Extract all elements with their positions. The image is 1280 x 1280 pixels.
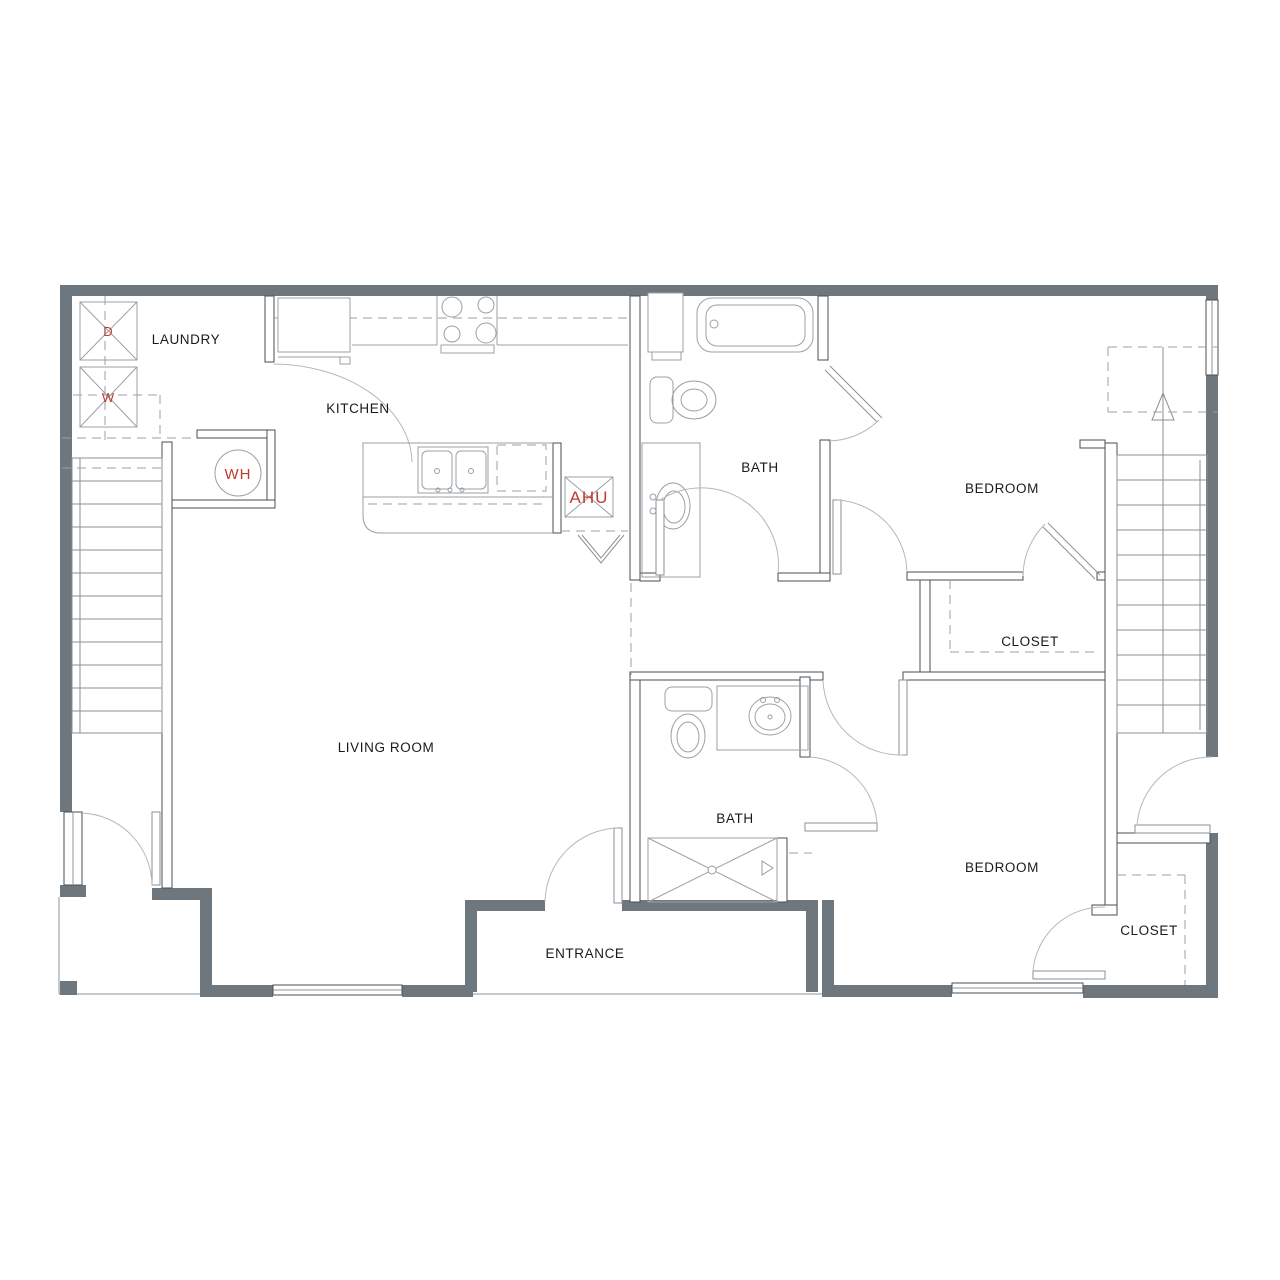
wall-top	[60, 285, 1218, 296]
closet-upper-south-wall	[903, 672, 1110, 680]
bathtub	[697, 298, 813, 352]
laundry-east-wall	[265, 296, 274, 362]
bedroom-upper-window	[1206, 300, 1218, 375]
bath-upper-hall-door	[656, 488, 778, 575]
bedroom-upper-south-wall	[907, 572, 1023, 580]
label-bedroom-upper: BEDROOM	[965, 481, 1039, 496]
wall-bottom-bedroom-right	[1083, 985, 1218, 998]
landing-closet-divider-wall	[1117, 833, 1210, 843]
bedroom-upper-door	[833, 500, 907, 574]
label-water-heater: WH	[225, 466, 252, 483]
stairwell-landing-cap	[1080, 440, 1105, 448]
wall-bottom-livingroom-left	[202, 985, 273, 997]
entrance-alcove-west-wall	[465, 900, 477, 992]
livingroom-bath-lower-wall	[630, 677, 640, 902]
label-kitchen: KITCHEN	[326, 401, 389, 416]
unit-entry-door	[1135, 757, 1212, 833]
bedroom-lower-window	[952, 983, 1083, 993]
bedroom-lower-door	[823, 680, 907, 755]
kitchen-island	[363, 443, 553, 533]
wh-closet-north-wall	[197, 430, 275, 438]
stair-livingroom-wall	[162, 442, 172, 888]
bath-upper-tub-east-wall	[818, 296, 828, 360]
entrance-alcove-north-left	[465, 900, 545, 911]
entrance-alcove-east-wall	[806, 900, 818, 992]
label-dryer: D	[103, 324, 112, 339]
vanity-lower	[717, 686, 808, 750]
bath-upper-bedroom-door	[825, 366, 882, 441]
wall-step-vertical	[200, 888, 212, 997]
label-closet-upper: CLOSET	[1001, 634, 1059, 649]
refrigerator	[278, 298, 350, 364]
linen-cabinet	[648, 293, 683, 352]
stove	[437, 296, 497, 353]
label-entrance: ENTRANCE	[545, 946, 624, 961]
bath-upper-fixtures	[642, 293, 813, 577]
stairwell-west-wall	[1105, 443, 1117, 907]
living-room-window	[273, 985, 402, 995]
ahu-closet-wall	[553, 443, 561, 533]
label-laundry: LAUNDRY	[152, 332, 220, 347]
floor-plan-drawing: LAUNDRY KITCHEN BATH BEDROOM CLOSET LIVI…	[0, 0, 1280, 1280]
wall-right-mid	[1206, 375, 1218, 757]
toilet-upper	[650, 377, 716, 423]
label-living-room: LIVING ROOM	[338, 740, 435, 755]
interior-walls	[162, 296, 1210, 915]
kitchen-sink	[418, 447, 488, 493]
label-bath-lower: BATH	[716, 811, 753, 826]
wall-left-cap	[60, 885, 86, 897]
label-bath-upper: BATH	[741, 460, 778, 475]
laundry-area	[62, 296, 412, 468]
shower-head-icon	[762, 861, 773, 875]
vanity-upper	[642, 443, 700, 577]
right-staircase	[1108, 347, 1218, 733]
bath-lower-door	[805, 757, 877, 831]
label-air-handler: AHU	[570, 488, 609, 507]
bedroom-lower-sw-wall	[822, 900, 834, 997]
closet-upper-door	[1023, 523, 1100, 579]
label-bedroom-lower: BEDROOM	[965, 860, 1039, 875]
patio-sidelite-window	[64, 812, 82, 885]
wall-bottom-livingroom-right	[402, 985, 473, 997]
kitchen-bath-wall	[630, 296, 640, 580]
wall-right-lower	[1206, 833, 1218, 998]
wh-closet-east-wall	[267, 430, 275, 508]
entrance-door	[545, 828, 622, 903]
label-washer: W	[102, 390, 115, 405]
patio-door	[82, 812, 160, 885]
porch-post	[60, 981, 77, 995]
closet-upper-west-wall	[920, 580, 930, 676]
bath-upper-east-wall	[820, 440, 830, 577]
porch-outline	[59, 897, 832, 994]
room-labels: LAUNDRY KITCHEN BATH BEDROOM CLOSET LIVI…	[152, 332, 1178, 961]
kitchen-fixtures	[273, 296, 628, 563]
wall-right-upper	[1206, 285, 1218, 300]
hall-south-wall	[630, 672, 823, 680]
wall-bottom-bedroom-left	[834, 985, 952, 997]
toilet-lower	[665, 687, 712, 758]
left-staircase	[72, 458, 162, 733]
dishwasher	[497, 445, 546, 491]
wh-closet-south-wall	[167, 500, 275, 508]
bath-upper-south-wall-right	[778, 573, 830, 581]
shower-east-wall	[777, 838, 787, 902]
label-closet-lower: CLOSET	[1120, 923, 1178, 938]
wall-left	[60, 285, 72, 812]
floor-plan-canvas: LAUNDRY KITCHEN BATH BEDROOM CLOSET LIVI…	[0, 0, 1280, 1280]
closet-lower-door	[1033, 907, 1105, 979]
